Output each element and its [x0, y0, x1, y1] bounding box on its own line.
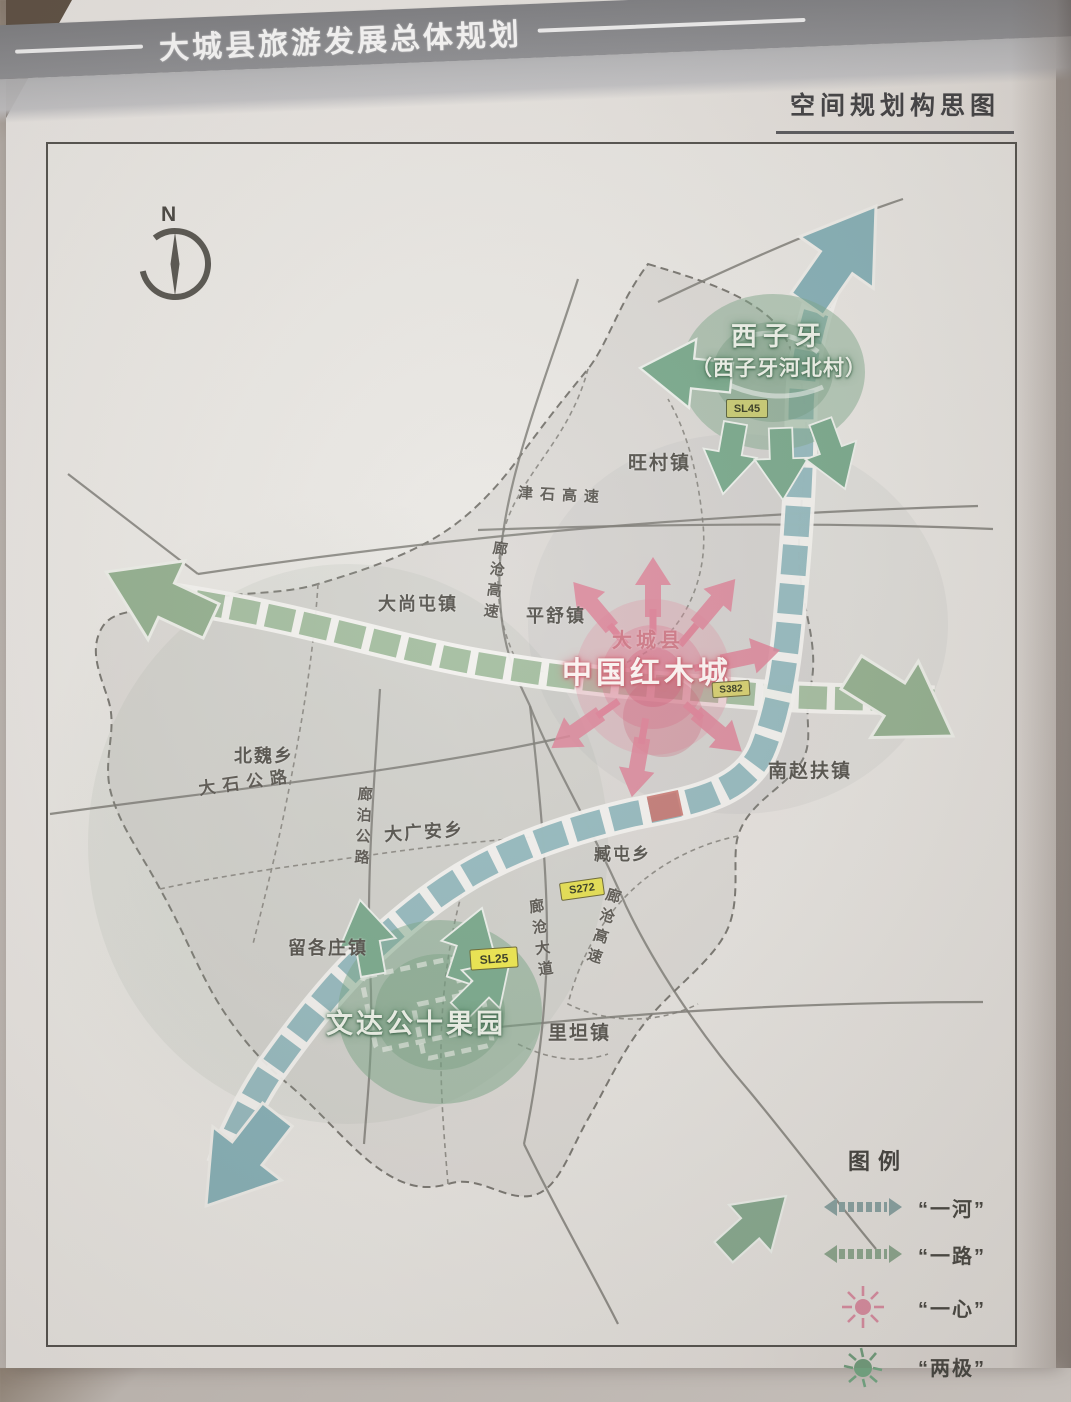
header-left-rule: [15, 45, 143, 54]
pole-title-wendagong: 文达公十果园: [326, 1002, 506, 1041]
legend-label: “一路”: [918, 1240, 986, 1269]
green-arrow-litan: [702, 1173, 807, 1276]
pole-title-xiziya: 西子牙: [684, 316, 874, 353]
heart-radial-icon: [820, 1284, 906, 1330]
poles-radial-icon: [820, 1343, 906, 1389]
road-chain-icon: [820, 1244, 906, 1264]
compass-north-label: N: [161, 203, 176, 227]
town-label-zangtun: 臧屯乡: [594, 840, 651, 865]
document-page: 大城县旅游发展总体规划 空间规划构思图: [6, 0, 1056, 1368]
legend-label: “一河”: [918, 1193, 986, 1222]
road-label-langbo-road: 廊泊公路: [350, 786, 375, 871]
town-label-litan: 里坦镇: [548, 1018, 611, 1045]
document-title: 大城县旅游发展总体规划: [158, 9, 522, 68]
road-badge-s382: S382: [711, 680, 750, 699]
town-label-pingshu: 平舒镇: [526, 602, 586, 628]
pole-subtitle-xiziya: （西子牙河北村）: [674, 352, 884, 382]
page-title: 空间规划构思图: [776, 86, 1014, 134]
town-label-nanzhaofu: 南赵扶镇: [768, 756, 852, 783]
town-label-daguangan: 大广安乡: [383, 815, 465, 847]
center-title-hongmucheng: 中国红木城: [562, 648, 732, 692]
compass-icon: [129, 218, 222, 311]
town-label-dashangtun: 大尚屯镇: [378, 590, 458, 616]
page-edge-shadow: [1011, 0, 1071, 1368]
town-label-liugezhuang: 留各庄镇: [288, 934, 368, 960]
road-badge-sl25: SL25: [469, 946, 518, 970]
legend-label: “一心”: [918, 1293, 986, 1322]
town-label-wangcun: 旺村镇: [628, 448, 691, 475]
legend-label: “两极”: [918, 1352, 986, 1381]
header-right-rule: [538, 18, 806, 33]
river-chain-icon: [820, 1197, 906, 1217]
road-badge-sl45: SL45: [726, 399, 768, 418]
